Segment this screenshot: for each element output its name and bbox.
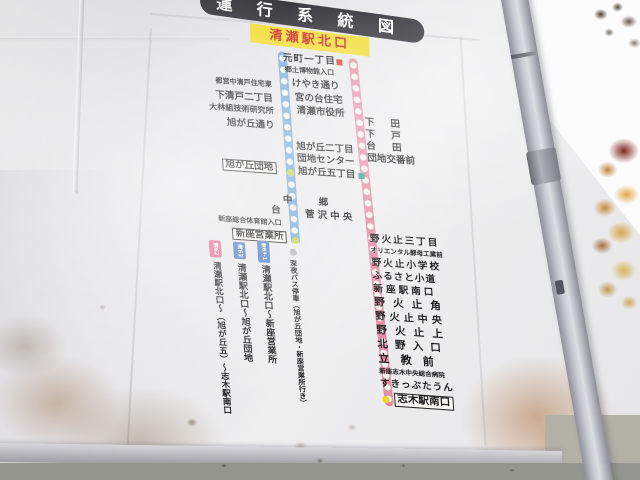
ground-strip	[0, 463, 640, 480]
autumn-foliage	[586, 128, 640, 318]
bus-stop-sign-photo: 運行系統図 清瀬駅北口 元町一丁目 郷土博物館入口 けやき通り 宮の台住宅 清瀬…	[0, 0, 640, 480]
frame-latch	[555, 280, 565, 295]
frame-joint	[511, 51, 538, 60]
frame-hinge	[526, 147, 561, 186]
foliage-dark	[584, 0, 640, 72]
